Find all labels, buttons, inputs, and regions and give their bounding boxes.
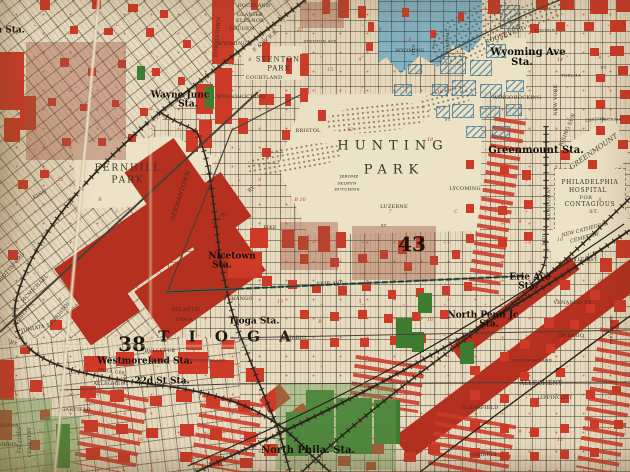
lot-number-red: 8	[558, 340, 561, 345]
lot-number-red: B 10	[294, 198, 306, 203]
street-label: ST.	[381, 224, 388, 228]
street-label: LYCOMING	[449, 187, 480, 192]
street-label: WINGOHOCKING	[217, 95, 266, 100]
street-label: ALLEGHENY	[93, 382, 129, 387]
institution-label: FOR	[579, 196, 592, 201]
lot-number-red: 8	[598, 56, 601, 61]
lot-number-red: 10	[557, 238, 563, 243]
lot-number-red: 15	[597, 358, 603, 363]
lot-number-red: 23	[297, 28, 303, 33]
institution-label: CONTAGIOUS	[565, 202, 616, 208]
station-label: Sta.	[511, 58, 533, 68]
street-label: MCMICHAEL	[20, 274, 49, 304]
street-label: NEWTOWN	[547, 189, 552, 221]
street-label: MARSHALL	[446, 29, 450, 55]
park-label: PARK	[267, 66, 291, 73]
street-label: ST.	[445, 118, 452, 122]
lot-number-red: 14	[557, 58, 563, 63]
street-label: ELEANOR	[236, 19, 264, 24]
street-label: WYOMING	[395, 49, 425, 54]
street-label: CAMBRIA	[469, 453, 496, 458]
lot-number-red: 9	[98, 410, 101, 415]
lot-number-red: 10	[277, 300, 283, 305]
street-label: NEW YORK	[554, 84, 559, 115]
lot-number-red: C	[454, 210, 458, 215]
street-label: HUTCHINS	[334, 188, 359, 192]
lot-number-red: 42	[197, 300, 203, 305]
street-label: RY.	[247, 184, 257, 194]
park-label: PARK	[364, 164, 424, 177]
lot-number-red: 7	[198, 438, 201, 443]
lot-number-red: 6	[58, 298, 61, 303]
institution-label: PHILADELPHIA	[561, 180, 618, 186]
lot-number-red: C	[598, 280, 602, 285]
street-label: KING	[32, 189, 48, 200]
street-label: JEROME	[340, 175, 359, 179]
park-label: PARK	[111, 177, 144, 186]
lot-number-red: 8	[598, 198, 601, 203]
street-label: ABBOTTSFORD	[0, 252, 26, 287]
street-label: COURTLAND	[246, 76, 282, 81]
park-label: STENTON	[256, 57, 300, 64]
lot-number-red: 9	[218, 220, 221, 225]
street-label: ALLEGHENY	[520, 381, 563, 387]
lot-number-red: 6	[266, 108, 269, 113]
institution-label: HOSPITAL	[569, 188, 607, 194]
street-label: BRISTOL	[295, 129, 320, 134]
street-label: GERMANTOWN	[170, 170, 192, 222]
lot-number-red: 25	[497, 148, 503, 153]
station-label: North Phila. Sta.	[261, 446, 355, 456]
street-label: JUNIATA ST.	[21, 322, 56, 334]
lot-number-red: 9	[158, 320, 161, 325]
street-label: LIPPINCOTT	[537, 396, 572, 401]
lot-number-red: B	[318, 320, 322, 325]
lot-number-red: 16	[427, 318, 433, 323]
lot-number-red: 6	[408, 38, 411, 43]
street-label: ST.	[601, 66, 608, 70]
district-label: T I O G A	[158, 330, 298, 345]
lot-number-red: 6	[258, 178, 261, 183]
lot-number-red: 8	[98, 198, 101, 203]
cemetery-label: CEMETERY	[28, 427, 33, 457]
paper-fold-crease	[148, 115, 153, 355]
lot-number-red: 11	[477, 250, 483, 255]
lot-number-red: 6	[478, 430, 481, 435]
paper-fold-crease	[0, 344, 290, 348]
street-label: NORRISTOWN	[214, 17, 223, 58]
street-label: PHILA. GER.	[98, 368, 126, 376]
lot-number-red: 15	[337, 238, 343, 243]
street-label: ATLANTIC	[172, 308, 201, 313]
street-label: ONTARIO	[558, 334, 585, 339]
lot-number-red: 14	[157, 248, 163, 253]
street-label: LOUDON	[535, 29, 555, 33]
map-canvas[interactable]: HUNTINGPARKFERNHILLPARKSTENTONPARKT I O …	[0, 0, 630, 472]
street-label: GLANIER	[237, 13, 263, 18]
lot-number-red: 5	[38, 430, 41, 435]
station-label: Sta.	[178, 101, 198, 110]
lot-number-red: 18	[427, 138, 433, 143]
lot-number-red: 7	[248, 328, 251, 333]
lot-number-red: 16	[137, 438, 143, 443]
street-label: WYOMING	[217, 42, 247, 47]
station-label: Sta.	[212, 262, 232, 271]
street-label: LOUDEN	[229, 27, 254, 32]
lot-number-red: 13	[97, 328, 103, 333]
street-label: BUTLER ST.	[565, 258, 598, 263]
lot-number-red: 9	[518, 430, 521, 435]
street-label: STENTON AVE	[303, 40, 336, 44]
lot-number-red: 27	[497, 330, 503, 335]
street-label: TIOGA	[175, 318, 193, 323]
street-label: 7TH	[433, 40, 437, 49]
street-label: RISING SUN	[559, 113, 577, 148]
street-label: FRANKFORD	[610, 315, 614, 344]
lot-number-red: 5	[358, 300, 361, 305]
street-label: ROOSEVELT	[484, 26, 525, 46]
street-label: SELWYN	[337, 182, 356, 186]
lot-number-red: 9	[378, 28, 381, 33]
lot-number-red: 12	[557, 438, 563, 443]
lot-number-red: 9	[358, 58, 361, 63]
street-label: CAMBRIA	[0, 443, 18, 448]
street-label: CAYUGA	[585, 117, 604, 124]
lot-number-red: 13	[437, 90, 443, 95]
street-label: 10TH	[412, 44, 416, 56]
street-label: WINGOHOCKING	[493, 96, 542, 101]
lot-number-red: 15	[327, 68, 333, 73]
cemetery-label: FELLOWS	[18, 427, 23, 453]
lot-number-red: 7	[388, 210, 391, 215]
street-label: LUZERNE	[380, 205, 408, 210]
ward-number: 43	[398, 234, 426, 254]
institution-label: ST.	[589, 210, 598, 215]
street-label: PIKE	[263, 226, 277, 231]
street-label: P. & R. R.R.	[252, 29, 280, 53]
lot-number-red: 8	[248, 58, 251, 63]
lot-number-red: 22	[57, 178, 63, 183]
street-label: ROBERTS	[13, 302, 34, 326]
street-label: THELMA	[561, 74, 581, 78]
lot-number-red: 19	[117, 298, 123, 303]
street-label: ONTARIO	[280, 336, 307, 341]
lot-number-red: 8	[418, 418, 421, 423]
street-label: VENANGO	[223, 297, 252, 302]
street-label: WESTMORELAND	[512, 359, 552, 363]
lot-number-red: 9	[518, 220, 521, 225]
lot-number-red: 12	[347, 128, 353, 133]
station-label: Logan Sta.	[0, 27, 25, 36]
street-label: PHILA	[543, 228, 548, 246]
street-label: WESTMORELAND	[186, 359, 226, 363]
street-label: VENANGO ST.	[553, 301, 592, 306]
station-label: Westmoreland Sta.	[97, 358, 192, 367]
street-label: ROCKLAND	[238, 4, 271, 9]
station-label: Tioga Sta.	[229, 318, 280, 327]
street-label: INDIANA	[0, 424, 19, 429]
station-label: Sta.	[518, 283, 538, 292]
lot-number-red: 7	[478, 108, 481, 113]
street-label: ERIE AVE	[316, 281, 343, 287]
station-label: 22d St Sta.	[134, 378, 189, 387]
street-label: GARFIELD	[61, 408, 91, 413]
street-label: CLEARFIELD	[462, 406, 499, 411]
lot-number-red: 11	[357, 420, 363, 425]
